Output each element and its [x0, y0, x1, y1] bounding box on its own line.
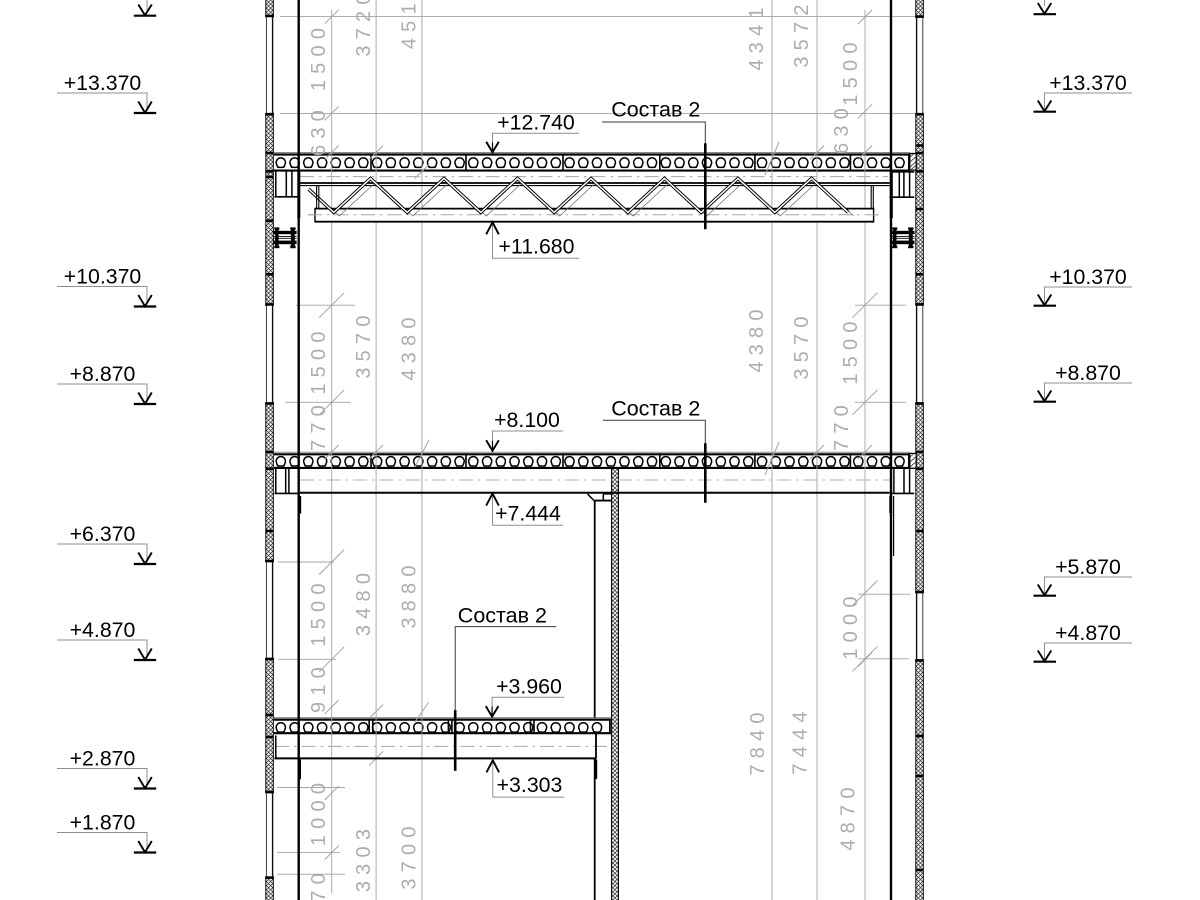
svg-text:3480: 3480 [353, 567, 375, 636]
svg-text:1500: 1500 [308, 577, 330, 646]
svg-text:4870: 4870 [838, 781, 860, 850]
svg-text:Состав 2: Состав 2 [611, 397, 700, 421]
svg-text:7840: 7840 [747, 706, 769, 775]
svg-text:7444: 7444 [790, 705, 812, 774]
svg-text:3572: 3572 [791, 0, 813, 68]
svg-text:4380: 4380 [746, 303, 768, 372]
svg-text:+8.870: +8.870 [70, 362, 136, 386]
svg-text:3570: 3570 [353, 309, 375, 378]
svg-text:+7.444: +7.444 [495, 501, 561, 525]
svg-text:+8.100: +8.100 [494, 408, 560, 432]
svg-text:1500: 1500 [308, 325, 330, 394]
svg-text:3880: 3880 [399, 559, 421, 628]
svg-text:1000: 1000 [840, 590, 862, 659]
svg-text:+8.870: +8.870 [1055, 361, 1121, 385]
svg-text:630: 630 [831, 102, 853, 154]
svg-text:+1.870: +1.870 [70, 810, 136, 834]
svg-text:+5.870: +5.870 [1055, 555, 1121, 579]
svg-text:770: 770 [831, 399, 853, 451]
svg-text:+12.740: +12.740 [497, 110, 575, 134]
svg-text:770: 770 [308, 399, 330, 451]
svg-text:1000: 1000 [308, 777, 330, 846]
svg-text:+13.370: +13.370 [64, 71, 142, 95]
svg-text:+3.303: +3.303 [497, 773, 563, 797]
svg-text:Состав 2: Состав 2 [458, 604, 547, 628]
svg-text:1500: 1500 [308, 22, 330, 91]
svg-text:4510: 4510 [399, 0, 421, 49]
svg-text:+4.870: +4.870 [1055, 621, 1121, 645]
svg-text:+10.370: +10.370 [1049, 265, 1127, 289]
svg-text:4341: 4341 [746, 1, 768, 70]
svg-text:+6.370: +6.370 [70, 522, 136, 546]
svg-text:3700: 3700 [399, 820, 421, 889]
svg-text:910: 910 [308, 661, 330, 713]
svg-text:+11.680: +11.680 [499, 234, 575, 258]
svg-text:Состав 2: Состав 2 [611, 98, 700, 122]
svg-text:3720: 3720 [353, 0, 375, 57]
svg-text:+13.370: +13.370 [1049, 71, 1127, 95]
svg-text:+10.370: +10.370 [64, 264, 142, 288]
svg-text:3570: 3570 [791, 310, 813, 379]
svg-text:1500: 1500 [840, 315, 862, 384]
svg-text:+4.870: +4.870 [70, 618, 136, 642]
svg-text:630: 630 [308, 104, 330, 156]
svg-text:3303: 3303 [353, 823, 375, 892]
svg-text:4380: 4380 [399, 311, 421, 380]
svg-text:+2.870: +2.870 [70, 746, 136, 770]
svg-text:770: 770 [308, 867, 330, 900]
svg-text:+3.960: +3.960 [496, 674, 562, 698]
svg-text:1500: 1500 [840, 36, 862, 105]
